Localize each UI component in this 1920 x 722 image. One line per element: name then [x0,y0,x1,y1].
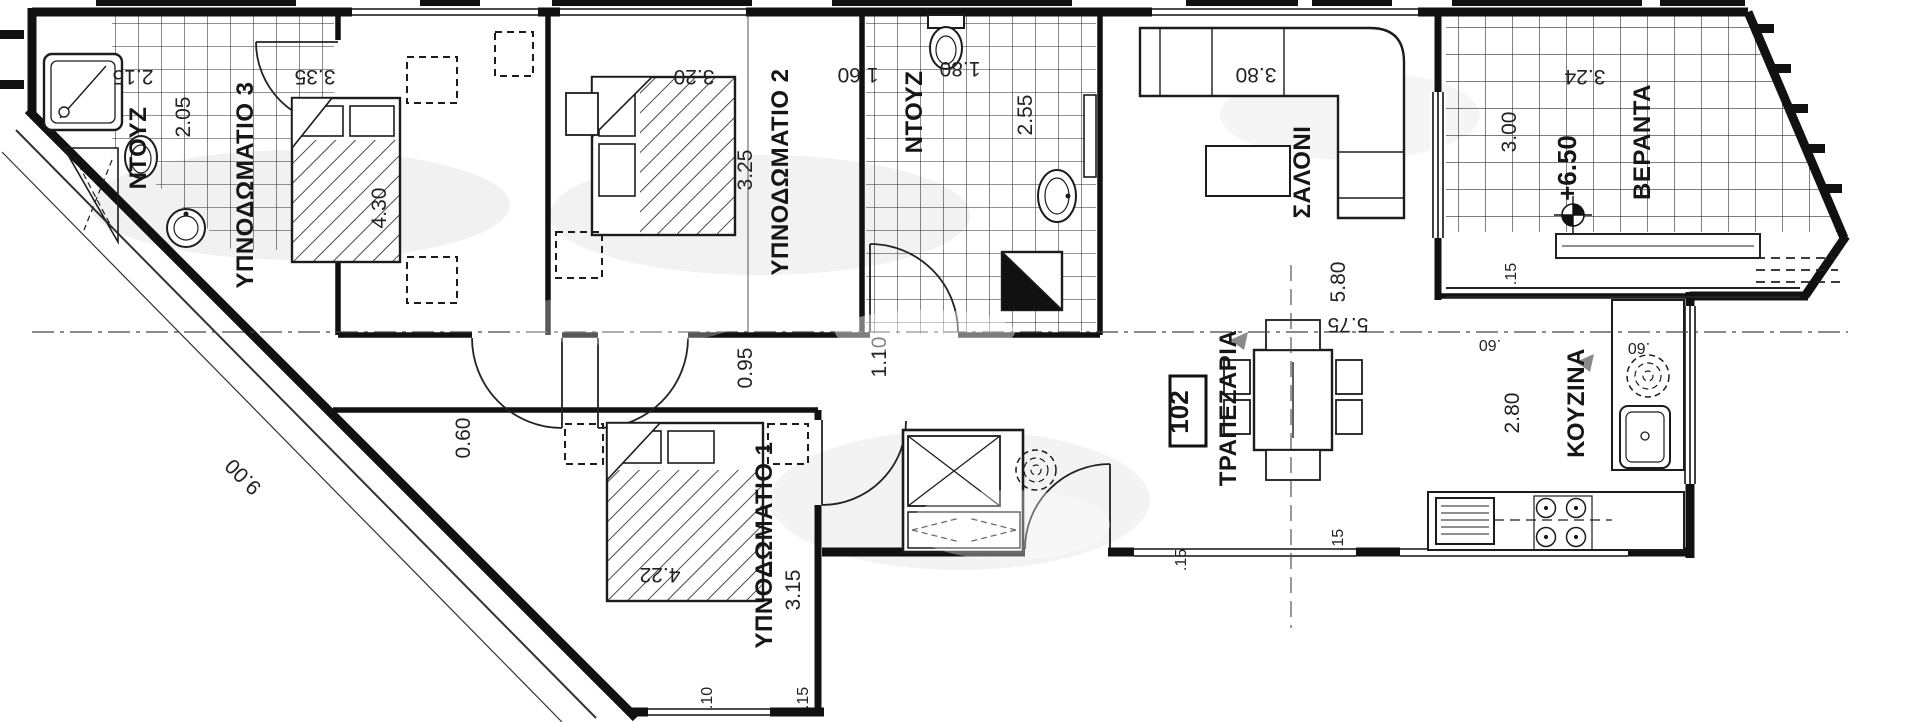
bathroom1-label: ΝΤΟΥΖ [125,107,152,190]
bed3-nightstand-a [407,57,457,103]
dim-hall-a: 0.95 [734,348,757,389]
dim-bed1-sill-b: .15 [795,687,812,709]
dining-chair-5 [1266,320,1320,350]
bathroom2-label: ΝΤΟΥΖ [901,71,928,154]
bed1-hatch [608,470,762,600]
dim-bed2-width: 3.20 [674,65,715,88]
bed2-nightstand-a [566,93,598,135]
bed2-hatch [640,78,734,234]
dim-veranda-width: 3.24 [1564,65,1605,88]
dim-bed1-sill-a: .10 [699,687,716,709]
bedroom2-label: ΥΠΝΟΔΩΜΑΤΙΟ 2 [767,68,794,275]
dim-bed1-length: 4.22 [640,563,681,586]
sink2-tap [1066,194,1071,199]
window-living [1152,5,1418,19]
window-bedroom2 [560,5,746,19]
dining-chair-4 [1336,400,1362,434]
coffee-table [1206,146,1290,196]
dim-living-sofa: 3.80 [1236,63,1277,86]
kitchen-fixtures [1428,300,1684,550]
dim-bed2-closet: 1.60 [838,63,879,86]
bath2-pipe-chase [1084,95,1096,177]
door-bedroom3 [472,338,562,428]
door-bedroom2 [598,338,688,428]
kitchen-label: ΚΟΥΖΙΝΑ [1563,348,1590,458]
dining-label: ΤΡΑΠΕΖΑΡΙΑ [1215,330,1242,487]
level-label: +6.50 [1552,135,1582,201]
bed1-nightstand-a [565,424,603,464]
sink1-basin [174,216,198,240]
window-dining-south [1134,545,1356,559]
dim-plot-diagonal: 9.00 [221,454,266,499]
floor-plan-page: ΥΠΝΟΔΩΜΑΤΙΟ 3 ΥΠΝΟΔΩΜΑΤΙΟ 2 ΥΠΝΟΔΩΜΑΤΙΟ … [0,0,1920,722]
dim-bed3-length: 4.30 [368,188,391,229]
dim-bath2-length: 2.55 [1014,95,1037,136]
veranda-bottom-slant [1805,236,1846,296]
bed3-nightstand-b [407,257,457,303]
dim-bed2-length: 3.25 [734,150,757,191]
window-bedroom3 [352,5,538,19]
bed3-pillow-b [350,106,394,136]
bedroom3-label: ΥΠΝΟΔΩΜΑΤΙΟ 3 [232,81,259,288]
dim-living-length: 5.80 [1327,262,1350,303]
dim-bath1-length: 2.05 [172,97,195,138]
dim-bed3-width: 3.35 [295,65,336,88]
dim-terrace-a: .15 [1173,549,1190,571]
dining-chair-6 [1266,450,1320,480]
unit-number: 102 [1164,390,1194,433]
living-label: ΣΑΛΟΝΙ [1289,126,1316,219]
dim-bed1-width: 3.15 [782,570,805,611]
dim-bath2-width: 1.80 [940,57,981,80]
dim-bath1-width: 2.15 [113,65,154,88]
shower-drain-icon [59,107,69,117]
sink1-tap [184,212,189,217]
sliding-door-veranda [1430,92,1446,238]
dim-kitchen-depth: 2.80 [1501,393,1524,434]
veranda-railing [1446,234,1800,297]
kitchen-sink-tap [1641,432,1649,440]
dim-veranda-tick: .15 [1503,263,1520,285]
veranda-label: ΒΕΡΑΝΤΑ [1629,84,1656,200]
dim-kitchen-counter2: .60 [1479,336,1501,353]
dining-chair-3 [1336,360,1362,394]
bedroom1-label: ΥΠΝΟΔΩΜΑΤΙΟ 1 [751,441,778,648]
dim-veranda-depth: 3.00 [1498,112,1521,153]
dim-living-length2: 5.75 [1328,313,1369,336]
fridge-icon [1436,498,1494,544]
dim-bed1-wall: 0.60 [452,418,475,459]
sink2-basin [1045,178,1069,214]
dim-kitchen-counter: .60 [1628,339,1650,356]
bed2-pillow-b [599,144,635,196]
floor-plan-drawing: ΥΠΝΟΔΩΜΑΤΙΟ 3 ΥΠΝΟΔΩΜΑΤΙΟ 2 ΥΠΝΟΔΩΜΑΤΙΟ … [0,0,1920,722]
bed2-wardrobe [495,32,533,76]
bed1-pillow-b [668,431,714,463]
dim-terrace-b: .15 [1330,529,1347,551]
